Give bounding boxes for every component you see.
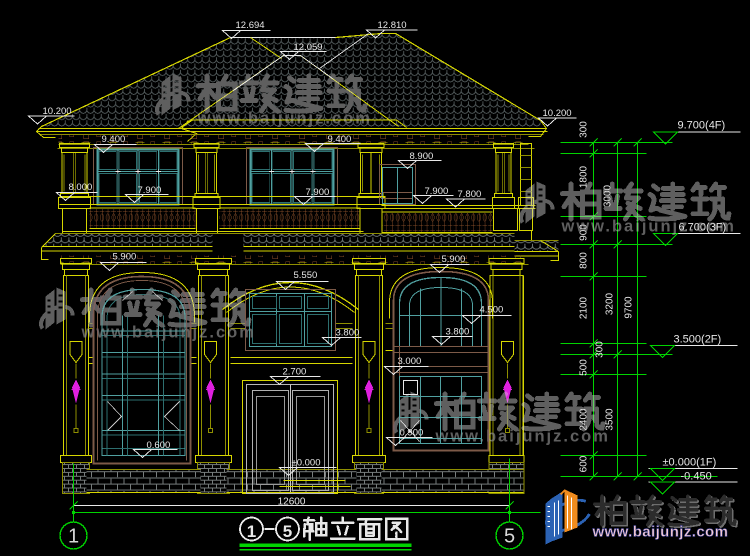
svg-text:2.700: 2.700 — [283, 367, 307, 378]
svg-text:5.900: 5.900 — [442, 254, 466, 265]
svg-text:10.200: 10.200 — [543, 108, 572, 119]
svg-text:1: 1 — [68, 526, 79, 548]
svg-text:9.700(4F): 9.700(4F) — [678, 120, 726, 132]
svg-text:3.000: 3.000 — [398, 356, 422, 367]
svg-text:3.800: 3.800 — [446, 327, 470, 338]
svg-text:300: 300 — [595, 341, 606, 358]
svg-text:±0.000: ±0.000 — [292, 458, 321, 469]
svg-text:5.900: 5.900 — [113, 252, 137, 263]
svg-text:10.200: 10.200 — [43, 106, 72, 117]
svg-text:www.baijunjz.com: www.baijunjz.com — [592, 524, 729, 541]
svg-text:7.800: 7.800 — [458, 189, 482, 200]
svg-text:5: 5 — [283, 522, 292, 541]
svg-text:5.550: 5.550 — [294, 270, 318, 281]
svg-text:5: 5 — [504, 526, 515, 548]
svg-text:600: 600 — [579, 455, 590, 472]
svg-text:2100: 2100 — [579, 296, 590, 319]
svg-text:9.400: 9.400 — [102, 134, 126, 145]
svg-text:3200: 3200 — [605, 292, 616, 315]
svg-text:4.500: 4.500 — [480, 305, 504, 316]
svg-text:1: 1 — [247, 522, 256, 541]
svg-text:9700: 9700 — [624, 296, 635, 319]
svg-text:800: 800 — [579, 252, 590, 269]
svg-text:300: 300 — [579, 121, 590, 138]
svg-text:500: 500 — [579, 359, 590, 376]
svg-text:8.000: 8.000 — [69, 182, 93, 193]
svg-text:3.800: 3.800 — [336, 328, 360, 339]
svg-text:12.810: 12.810 — [378, 20, 407, 31]
svg-text:±0.000(1F): ±0.000(1F) — [663, 457, 717, 469]
svg-text:-0.450: -0.450 — [681, 471, 712, 483]
svg-text:3.500(2F): 3.500(2F) — [674, 334, 722, 346]
svg-text:12.694: 12.694 — [236, 20, 265, 31]
